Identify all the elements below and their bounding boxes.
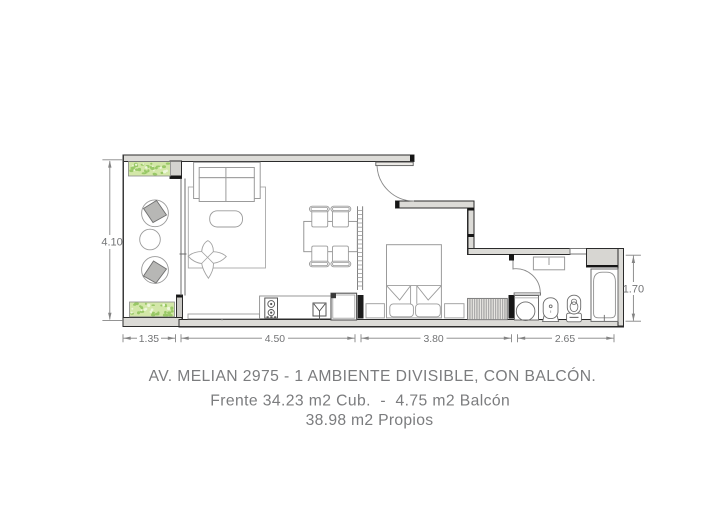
svg-text:4.50: 4.50	[265, 334, 285, 345]
svg-text:3.80: 3.80	[423, 334, 443, 345]
svg-text:38.98 m2 Propios: 38.98 m2 Propios	[306, 412, 434, 429]
svg-text:AV. MELIAN 2975 - 1 AMBIENTE D: AV. MELIAN 2975 - 1 AMBIENTE DIVISIBLE, …	[149, 366, 597, 385]
svg-text:2.65: 2.65	[555, 334, 575, 345]
svg-text:1.70: 1.70	[623, 283, 644, 295]
svg-text:1.35: 1.35	[139, 334, 159, 345]
svg-text:Frente 34.23 m2 Cub. - 4.75: Frente 34.23 m2 Cub. - 4.75 m2 Balcón	[210, 393, 510, 410]
svg-text:4.10: 4.10	[101, 237, 122, 249]
